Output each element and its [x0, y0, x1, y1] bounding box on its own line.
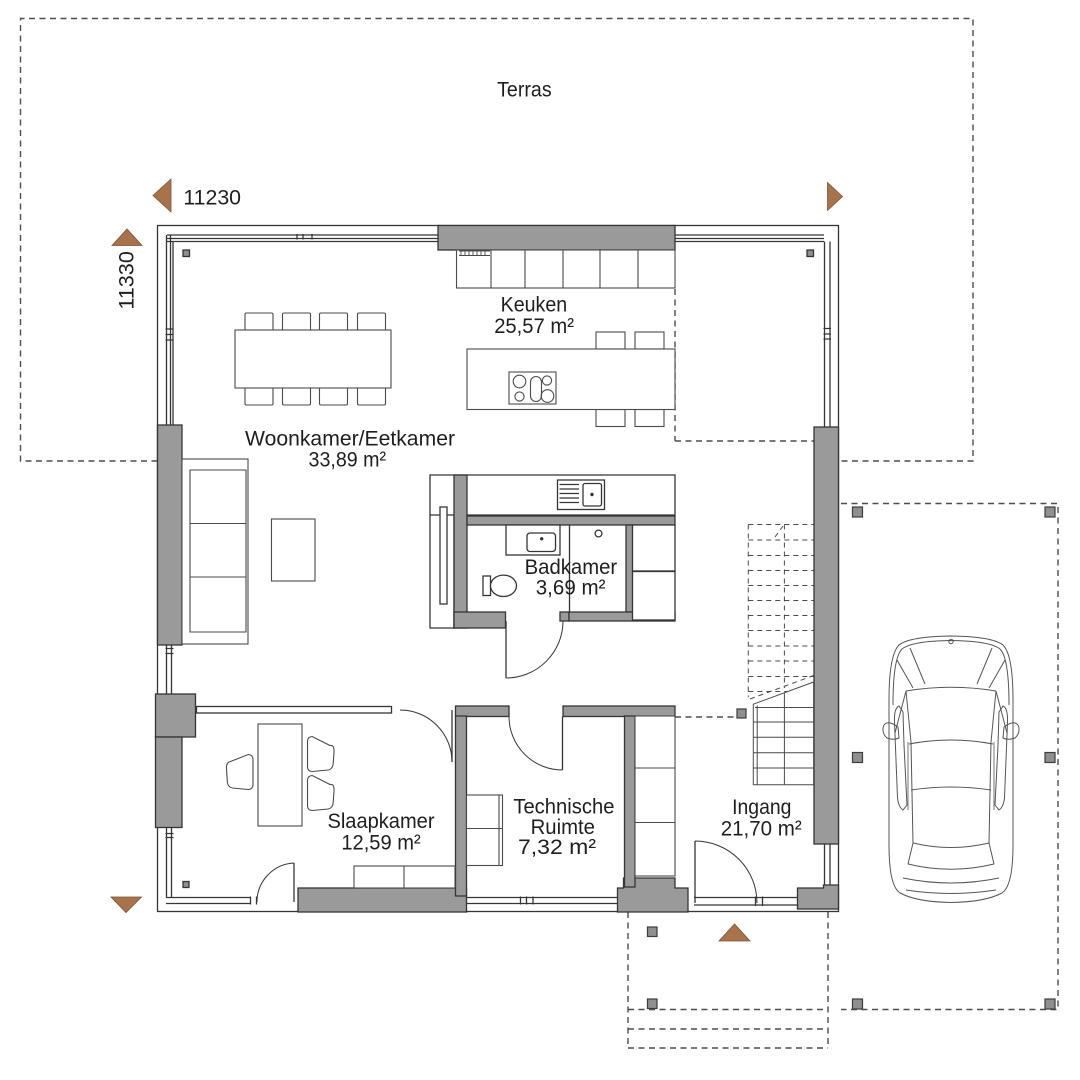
svg-text:11330: 11330 [116, 251, 139, 310]
svg-text:3,69 m²: 3,69 m² [536, 577, 606, 600]
svg-text:12,59 m²: 12,59 m² [341, 832, 420, 855]
svg-text:33,89 m²: 33,89 m² [309, 449, 387, 472]
svg-text:11230: 11230 [183, 187, 241, 210]
svg-text:Keuken: Keuken [501, 294, 568, 317]
svg-text:Terras: Terras [497, 79, 552, 102]
svg-text:25,57 m²: 25,57 m² [494, 315, 574, 338]
svg-text:Badkamer: Badkamer [525, 556, 618, 579]
svg-text:Slaapkamer: Slaapkamer [327, 810, 434, 833]
svg-text:7,32 m²: 7,32 m² [518, 836, 596, 859]
svg-text:Ingang: Ingang [732, 796, 791, 819]
svg-text:Woonkamer/Eetkamer: Woonkamer/Eetkamer [245, 428, 455, 451]
svg-text:21,70 m²: 21,70 m² [721, 818, 802, 841]
